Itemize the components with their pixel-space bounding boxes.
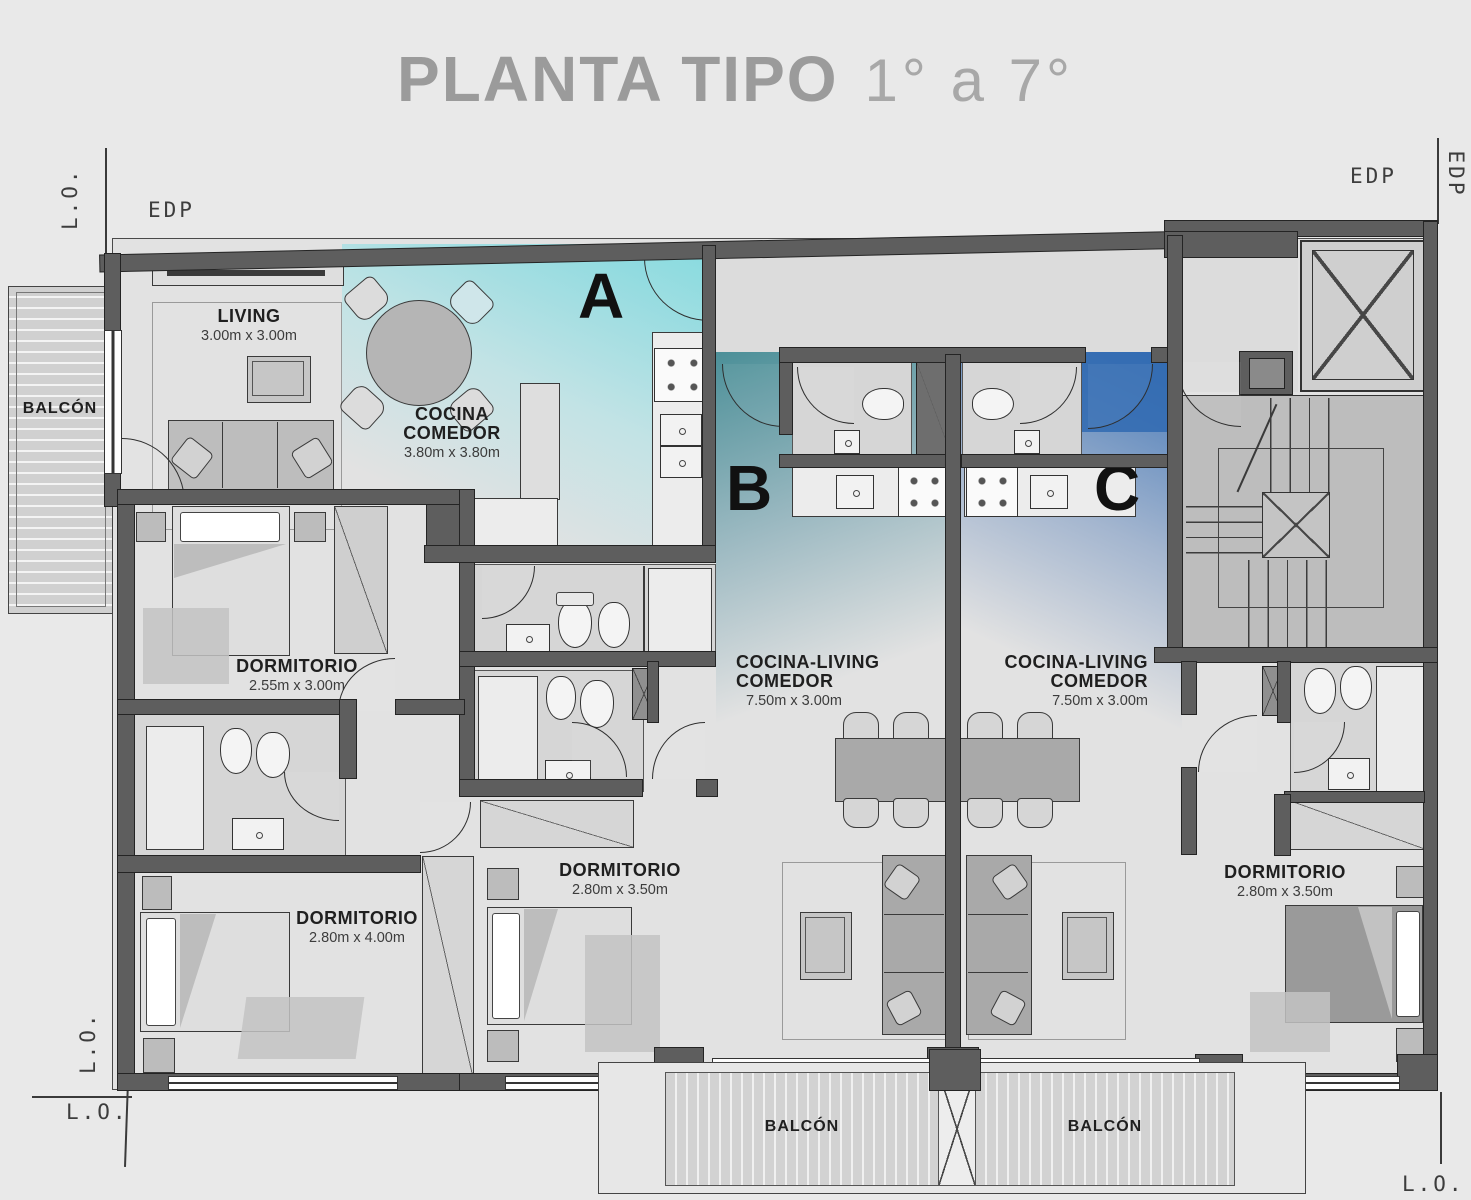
elevator-x-icon: [1312, 250, 1414, 380]
wall-living-dorm1: [118, 490, 464, 504]
stove-a: [654, 348, 710, 402]
wall-vestibule-band: [1165, 232, 1297, 257]
wall-bath-c-bottom: [962, 455, 1168, 467]
sofa-b-seam: [884, 972, 944, 973]
stair-guide: [1218, 448, 1384, 608]
title-range: 1° a 7°: [865, 47, 1074, 114]
toilet: [1340, 666, 1372, 710]
dining-chair: [1017, 798, 1053, 828]
wall-c-dorm-stub: [1275, 795, 1290, 855]
kitchen-sink-c: [1030, 475, 1068, 509]
dormitorio-a2-label: DORMITORIO 2.80m x 4.00m: [282, 908, 432, 946]
stove-c: [966, 467, 1018, 517]
wall-c-bath-left: [1278, 662, 1290, 722]
dining-chair: [893, 798, 929, 828]
rug: [143, 608, 229, 684]
site-line: [1440, 1092, 1442, 1164]
unit-b-label: B: [726, 456, 772, 520]
stove-b: [898, 467, 950, 517]
wall-party-bc: [946, 355, 960, 1055]
wall-c-hall-left: [1182, 662, 1196, 714]
toilet: [972, 388, 1014, 420]
bidet: [546, 676, 576, 720]
wall-bath-b-bottom: [780, 455, 950, 467]
wall-bath3-bottom: [118, 856, 420, 872]
common-hall: [712, 240, 1168, 352]
nightstand: [487, 1030, 519, 1062]
bath-sink-c: [1014, 430, 1040, 454]
edp-marker-right-vertical: EDP: [1444, 143, 1468, 205]
wardrobe-dorm3: [480, 800, 634, 848]
dining-chair: [967, 798, 1003, 828]
wall-dorm3-top-stub: [697, 780, 717, 796]
wall-a-kitchen-south: [425, 546, 715, 562]
wall-b-nook-right: [780, 352, 792, 434]
wall-stairs-bottom: [1155, 648, 1437, 662]
dining-table-b: [835, 738, 955, 802]
living-label: LIVING 3.00m x 3.00m: [178, 306, 320, 344]
coffee-table-b-inner: [805, 917, 845, 973]
wall-dorm1-bottom: [118, 700, 340, 714]
wall-pier: [427, 498, 459, 548]
wall-bath3-right: [340, 700, 356, 778]
kitchen-counter-south-a: [460, 498, 558, 548]
vanity-a1: [506, 624, 550, 652]
bath-sink-b: [834, 430, 860, 454]
dormitorio-a3-label: DORMITORIO 2.80m x 3.50m: [545, 860, 695, 898]
site-line: [32, 1096, 132, 1098]
wall-bath-bc-top: [780, 348, 1085, 362]
vanity-a3: [232, 818, 284, 850]
wall-c-right: [1168, 236, 1182, 662]
shower-a1: [648, 568, 712, 654]
balcony-b-label: BALCÓN: [752, 1118, 852, 1136]
balcony-c-label: BALCÓN: [1055, 1118, 1155, 1136]
wardrobe-dorm1: [334, 506, 388, 654]
bidet: [598, 602, 630, 648]
nightstand: [143, 1038, 175, 1073]
rug: [1250, 992, 1330, 1052]
dining-table-round: [366, 300, 472, 406]
wall-pier: [1398, 1055, 1437, 1090]
bed-fold: [180, 914, 216, 1028]
bed-pillow: [1396, 911, 1420, 1017]
nightstand: [294, 512, 326, 542]
cocina-living-c-label: COCINA-LIVING COMEDOR 7.50m x 3.00m: [988, 652, 1148, 709]
wall-bath2-right: [648, 662, 658, 722]
nightstand: [142, 876, 172, 910]
bed-fold: [1358, 907, 1392, 1019]
site-line: [1437, 138, 1439, 224]
edp-marker-right: EDP: [1350, 164, 1397, 188]
wall-a-kitchen-right: [703, 246, 715, 560]
wall-c-bath-bottom: [1285, 792, 1424, 802]
wall-bath1-bottom: [460, 652, 715, 666]
wall-bath-bc-top-stub: [1152, 348, 1168, 362]
wardrobe-dorm2: [422, 856, 474, 1078]
lo-marker-bottom-right: L.O.: [1402, 1172, 1465, 1196]
wall-balcony-center-pier: [930, 1050, 980, 1090]
vanity-c2: [1328, 758, 1370, 790]
dining-table-c: [960, 738, 1080, 802]
window-balcony-left: [104, 330, 122, 474]
dormitorio-c-label: DORMITORIO 2.80m x 3.50m: [1210, 862, 1360, 900]
bed-fold: [174, 544, 286, 578]
site-line: [105, 148, 107, 254]
sofa-living-seam: [277, 422, 278, 488]
rug: [238, 997, 365, 1059]
window-dorm2: [168, 1076, 398, 1090]
dining-chair: [843, 798, 879, 828]
shower-c2: [1376, 666, 1424, 792]
living-window-bar: [167, 270, 325, 276]
toilet: [558, 600, 592, 648]
toilet: [862, 388, 904, 420]
balcony-left-label: BALCÓN: [10, 400, 110, 418]
cocina-living-b-label: COCINA-LIVING COMEDOR 7.50m x 3.00m: [736, 652, 896, 709]
shower-a2: [478, 676, 538, 786]
wall-dorm1-bottom-stub: [396, 700, 464, 714]
cocina-comedor-label: COCINA COMEDOR 3.80m x 3.80m: [378, 404, 526, 461]
bed-pillow: [146, 918, 176, 1026]
wall-c-hall-left2: [1182, 768, 1196, 854]
lo-marker-top-left: L.O.: [58, 170, 82, 230]
sofa-c-seam: [968, 972, 1028, 973]
title-main: PLANTA TIPO: [397, 43, 839, 115]
toilet: [580, 680, 614, 728]
kitchen-cabinet-tall-a: [520, 383, 560, 500]
balcony-left-inner-line: [16, 292, 106, 607]
coffee-table-living-inner: [252, 361, 304, 396]
kitchen-sink-b: [836, 475, 874, 509]
bidet: [220, 728, 252, 774]
nightstand: [1396, 866, 1426, 898]
bath-divider: [643, 566, 645, 654]
sofa-b-seam: [884, 914, 944, 915]
kitchen-sink-a: [660, 414, 702, 446]
coffee-table-c-inner: [1067, 917, 1107, 973]
nightstand: [136, 512, 166, 542]
sofa-living-seam: [222, 422, 223, 488]
wall-left-lower: [118, 504, 134, 1090]
lo-marker-bottom-left: L.O.: [66, 1100, 129, 1124]
kitchen-sink-a: [660, 446, 702, 478]
bed-pillow: [180, 512, 280, 542]
toilet-tank: [556, 592, 594, 606]
sofa-c-seam: [968, 914, 1028, 915]
unit-a-label: A: [578, 264, 624, 328]
stair-door-panel: [1249, 358, 1285, 389]
wall-dorm3-top: [460, 780, 642, 796]
wardrobe-dorm-c: [1290, 800, 1426, 850]
edp-marker-left: EDP: [148, 198, 195, 222]
floor-plan: PLANTA TIPO1° a 7° L.O. EDP EDP EDP L.O.…: [0, 0, 1471, 1200]
bidet: [1304, 668, 1336, 714]
nightstand: [487, 868, 519, 900]
rug: [585, 935, 660, 1052]
wall-center-vertical-a: [460, 490, 474, 792]
shower-a3: [146, 726, 204, 850]
bed-fold: [524, 909, 558, 1021]
page-title: PLANTA TIPO1° a 7°: [0, 42, 1471, 116]
lo-marker-bottom-left-vertical: L.O.: [76, 1014, 100, 1074]
bed-pillow: [492, 913, 520, 1019]
